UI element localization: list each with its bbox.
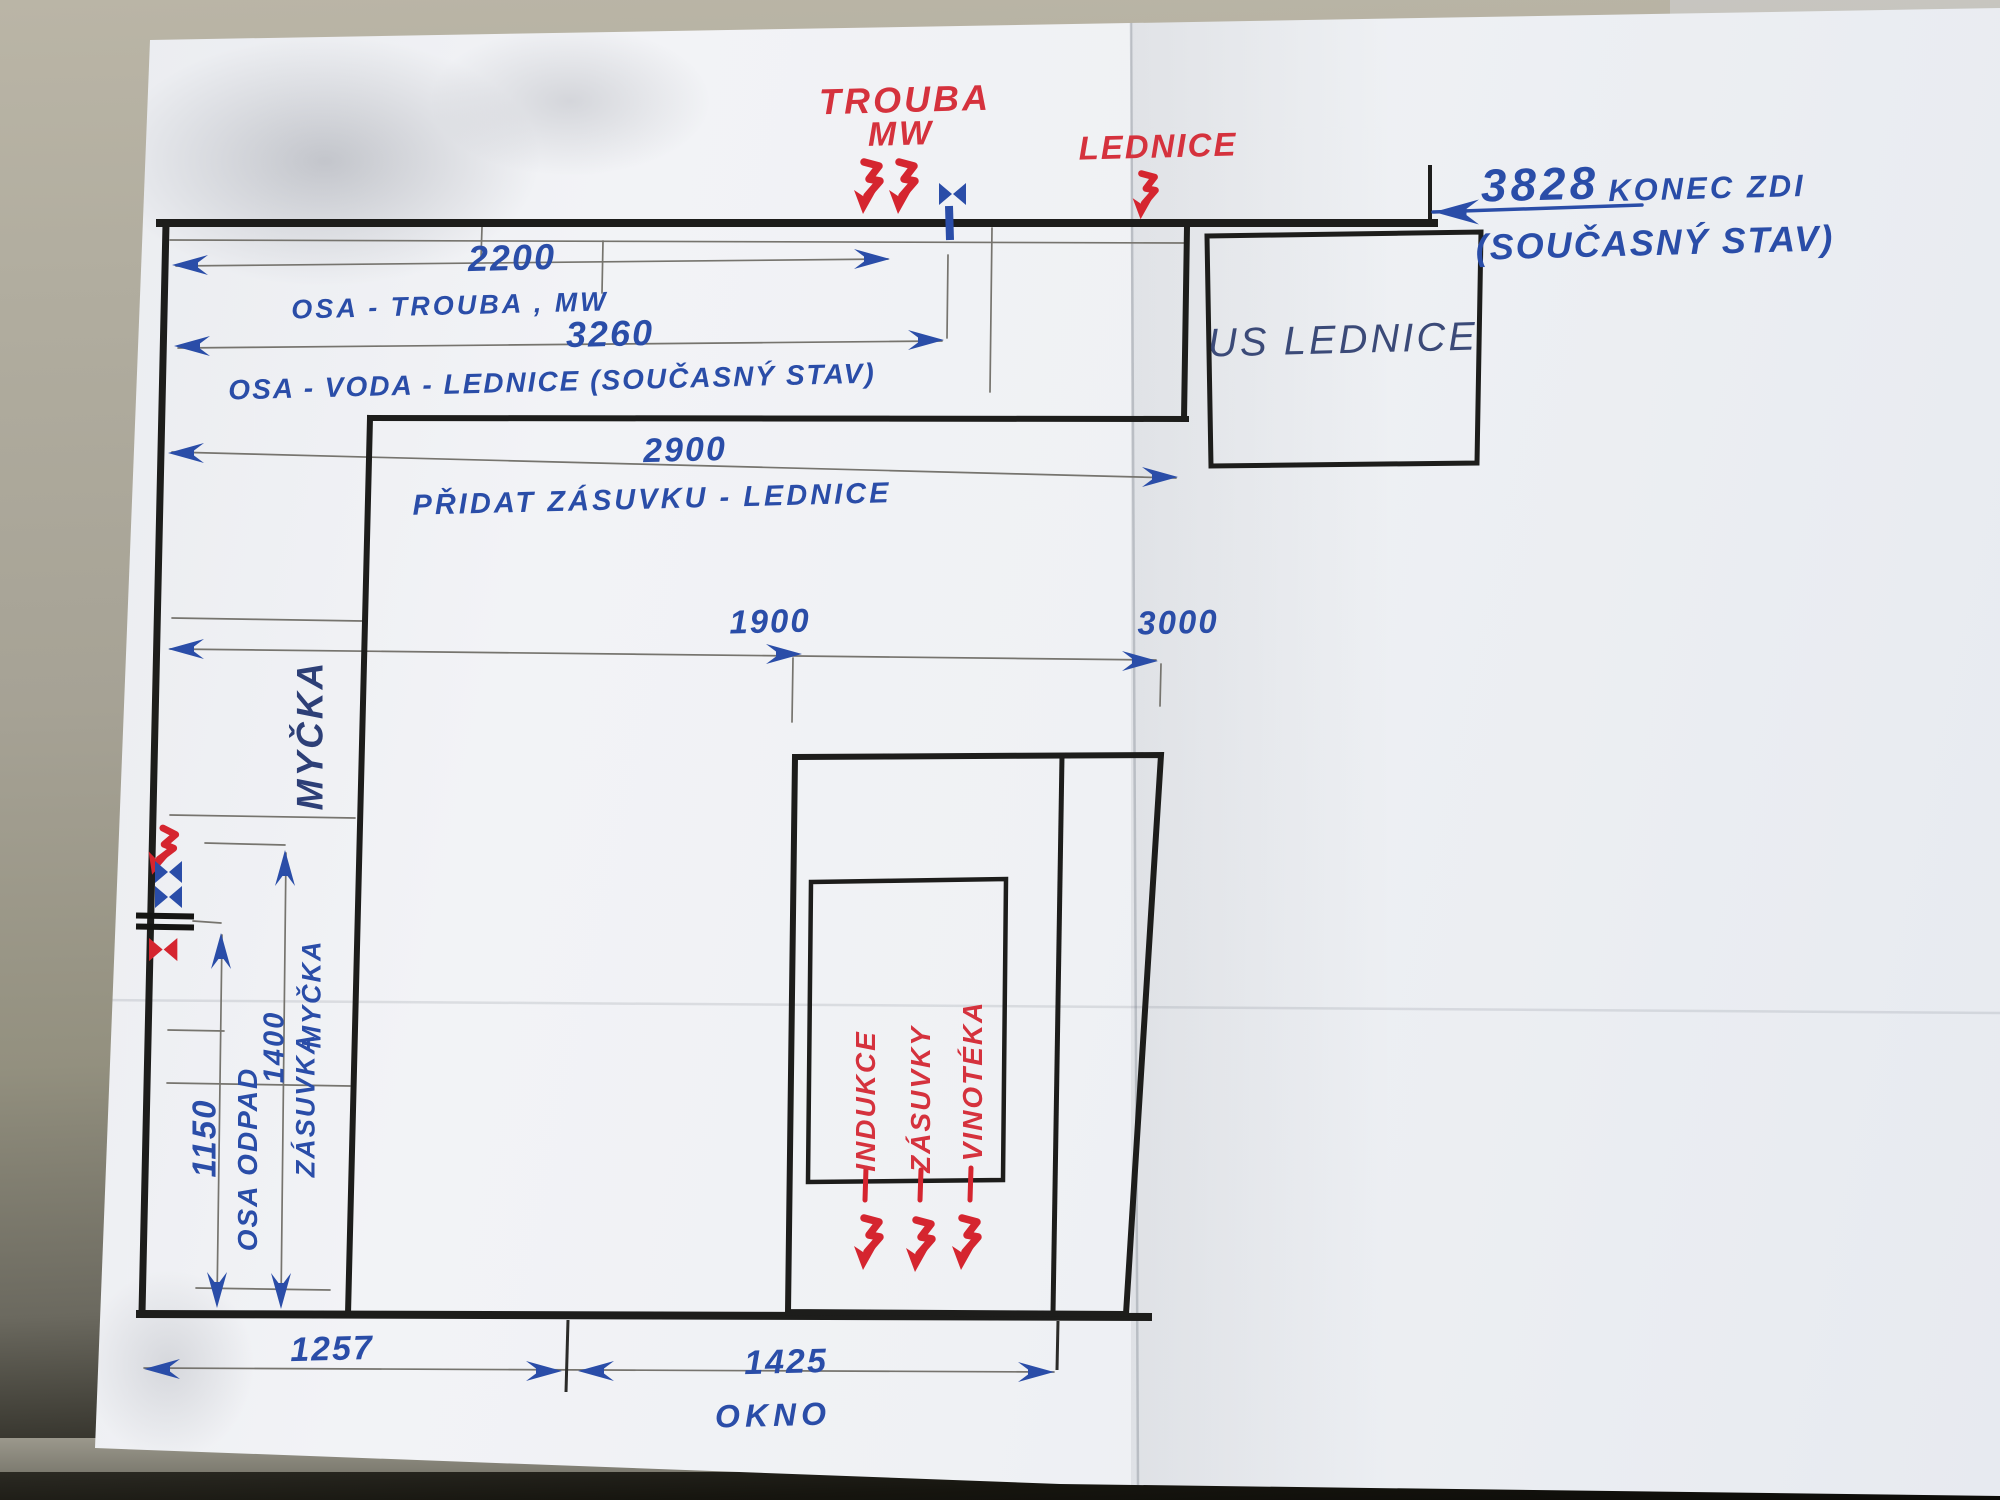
island-label-vinoteka: VINOTÉKA [959,1001,987,1162]
outlet-bolt-icon-trouba [854,162,880,214]
dim-1400-value: 1400 [261,1011,290,1084]
outlet-bolt-icon-zasuvky [906,1220,932,1272]
dim-1900-value: 1900 [729,603,811,638]
label-soucasny-stav: (SOUČASNÝ STAV) [1475,220,1835,265]
valve-icon-blue-2 [155,886,182,908]
label-lednice: LEDNICE [1078,127,1238,164]
label-konec-zdi: KONEC ZDI [1608,170,1806,206]
outlet-bolt-icon-mw [889,162,915,214]
dim-1150-value: 1150 [188,1099,221,1178]
dim-3260-value: 3260 [565,315,654,353]
dim-2900-value: 2900 [643,432,728,468]
dim-2200-value: 2200 [467,239,556,277]
label-old-fridge: US LEDNICE [1207,316,1478,363]
drain-hatch-icon [136,912,194,930]
outlet-bolt-icon-lednice [1133,174,1156,220]
water-valve-icon [939,183,966,240]
dim-1257-value: 1257 [290,1331,375,1367]
island-label-zasuvky: ZÁSUVKY [907,1025,935,1173]
island-label-indukce: INDUKCE [852,1030,880,1172]
outlet-bolt-icon-vinoteka [952,1218,978,1270]
sketch-paper: TROUBA MW LEDNICE 3828 KONEC ZDI (SOUČAS… [0,0,2000,1500]
dim-1150-label: OSA ODPAD [234,1067,262,1251]
dim-3000-value: 3000 [1137,604,1219,639]
label-mw: MW [867,116,934,152]
dim-1425-value: 1425 [744,1344,829,1380]
label-dishwasher: MYČKA [292,660,329,811]
dim-1400-label-zasuvka: ZÁSUVKA [293,1033,320,1178]
dim-wall-end-value: 3828 [1480,159,1600,208]
label-okno: OKNO [715,1397,832,1432]
outlet-bolt-icon-indukce [854,1218,880,1270]
